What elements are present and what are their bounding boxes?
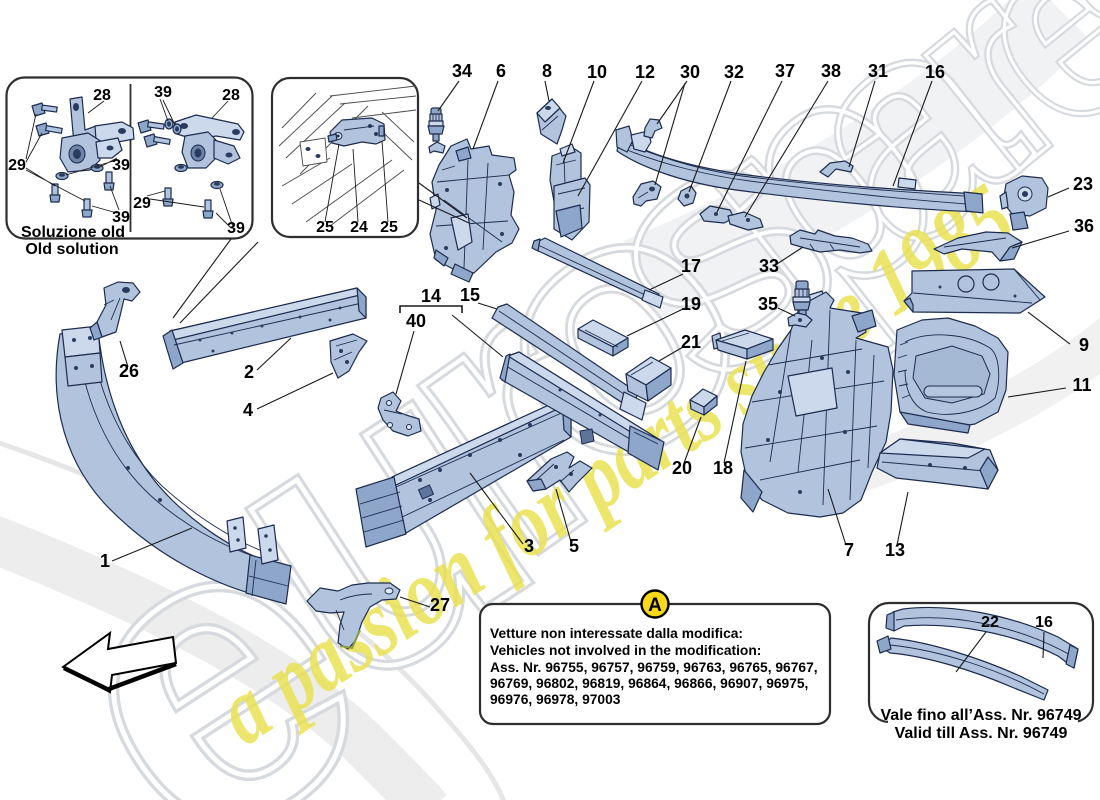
svg-text:3: 3 — [524, 536, 534, 556]
svg-text:35: 35 — [758, 294, 778, 314]
svg-text:39: 39 — [112, 157, 130, 174]
svg-text:36: 36 — [1074, 216, 1094, 236]
svg-text:12: 12 — [635, 62, 655, 82]
svg-text:Ass. Nr. 96755, 96757, 96759,: Ass. Nr. 96755, 96757, 96759, 96763, 967… — [490, 660, 818, 675]
svg-text:28: 28 — [222, 87, 240, 104]
svg-text:6: 6 — [496, 61, 506, 81]
svg-text:28: 28 — [93, 87, 111, 104]
svg-text:18: 18 — [713, 458, 733, 478]
svg-text:11: 11 — [1072, 375, 1091, 395]
svg-text:23: 23 — [1073, 174, 1093, 194]
svg-text:Vehicles not involved in the m: Vehicles not involved in the modificatio… — [490, 643, 761, 658]
svg-text:31: 31 — [868, 61, 888, 81]
svg-text:39: 39 — [112, 209, 130, 226]
svg-text:34: 34 — [452, 61, 472, 81]
svg-text:38: 38 — [821, 61, 841, 81]
svg-text:5: 5 — [569, 536, 579, 556]
svg-text:40: 40 — [406, 311, 426, 331]
svg-text:Vetture non interessate dalla: Vetture non interessate dalla modifica: — [490, 626, 743, 641]
svg-text:16: 16 — [925, 62, 945, 82]
svg-text:7: 7 — [844, 540, 854, 560]
svg-text:39: 39 — [227, 220, 245, 237]
svg-text:16: 16 — [1035, 614, 1053, 631]
svg-text:A: A — [648, 595, 662, 616]
svg-text:25: 25 — [316, 219, 334, 236]
svg-text:29: 29 — [8, 157, 26, 174]
svg-text:Valid till Ass. Nr. 96749: Valid till Ass. Nr. 96749 — [895, 725, 1068, 742]
svg-text:Soluzione old: Soluzione old — [21, 224, 125, 241]
svg-text:10: 10 — [587, 62, 607, 82]
svg-text:17: 17 — [681, 256, 701, 276]
svg-text:32: 32 — [724, 62, 744, 82]
svg-text:30: 30 — [680, 62, 700, 82]
svg-text:Old solution: Old solution — [25, 241, 118, 258]
svg-text:29: 29 — [133, 195, 151, 212]
svg-text:1: 1 — [100, 551, 110, 571]
svg-text:21: 21 — [681, 332, 701, 352]
svg-text:4: 4 — [243, 400, 253, 420]
svg-text:8: 8 — [542, 61, 552, 81]
svg-text:39: 39 — [154, 84, 172, 101]
svg-text:20: 20 — [672, 458, 692, 478]
svg-text:9: 9 — [1079, 335, 1089, 355]
svg-text:96976, 96978, 97003: 96976, 96978, 97003 — [490, 692, 621, 707]
svg-text:25: 25 — [380, 219, 398, 236]
svg-text:14: 14 — [421, 286, 441, 306]
svg-text:33: 33 — [759, 256, 779, 276]
svg-text:22: 22 — [981, 614, 999, 631]
svg-text:24: 24 — [350, 219, 368, 236]
svg-text:13: 13 — [885, 540, 905, 560]
svg-text:19: 19 — [681, 294, 701, 314]
svg-text:Vale fino all’Ass. Nr. 96749: Vale fino all’Ass. Nr. 96749 — [881, 707, 1082, 724]
svg-text:2: 2 — [244, 362, 254, 382]
svg-text:26: 26 — [119, 361, 139, 381]
svg-text:15: 15 — [460, 285, 480, 305]
svg-text:37: 37 — [775, 61, 795, 81]
svg-text:96769, 96802, 96819, 96864, 96: 96769, 96802, 96819, 96864, 96866, 96907… — [490, 676, 808, 691]
svg-text:27: 27 — [430, 595, 450, 615]
